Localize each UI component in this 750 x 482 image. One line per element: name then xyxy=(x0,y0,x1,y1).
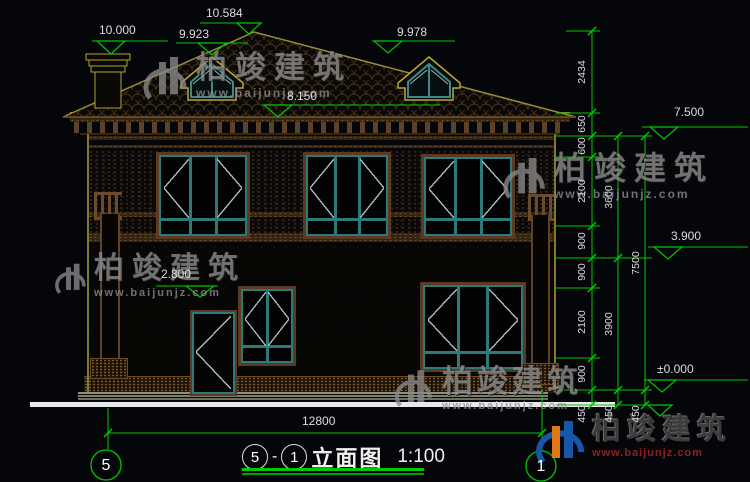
watermark-logo xyxy=(142,52,190,108)
dim-chain-outer: 450 xyxy=(630,386,642,442)
brand-url: www.baijunjz.com xyxy=(592,447,732,459)
elevation-value-eave: 8.150 xyxy=(287,90,317,102)
watermark-logo xyxy=(502,152,548,208)
dim-chain-middle: 450 xyxy=(603,386,615,442)
cad-elevation-canvas: 柏竣建筑 www.baijunjz.com 柏竣建筑 www.baijunjz.… xyxy=(0,0,750,482)
watermark-logo xyxy=(54,254,88,306)
elevation-value-chimney: 10.000 xyxy=(99,24,136,36)
title-dash: - xyxy=(272,448,277,466)
grid-bubble-left-label: 5 xyxy=(99,457,113,475)
elevation-value-ridge: 10.584 xyxy=(206,7,243,19)
title-underline-heavy xyxy=(242,468,424,471)
dim-chain-inner: 450 xyxy=(576,386,588,442)
dim-chain-middle: 3600 xyxy=(603,169,615,225)
watermark-name: 柏竣建筑 xyxy=(196,52,352,83)
title-grid-left: 5 xyxy=(242,444,268,470)
right-dormer xyxy=(398,57,460,100)
elevation-value-dormer-left: 9.923 xyxy=(179,28,209,40)
watermark: 柏竣建筑 www.baijunjz.com xyxy=(392,366,582,414)
dimension-overall-width: 12800 xyxy=(302,415,335,427)
watermark-logo xyxy=(392,366,436,414)
elevation-value-porch: 2.800 xyxy=(161,268,191,280)
watermark-name: 柏竣建筑 xyxy=(442,366,582,397)
elevation-value-zero: ±0.000 xyxy=(657,363,694,375)
dim-chain-inner: 2434 xyxy=(576,44,588,100)
watermark-url: www.baijunjz.com xyxy=(442,400,582,412)
title-underline-light xyxy=(242,473,424,475)
dim-chain-middle: 3900 xyxy=(603,296,615,352)
dim-chain-inner: 2100 xyxy=(576,163,588,219)
dim-chain-inner: 900 xyxy=(576,244,588,300)
watermark: 柏竣建筑 www.baijunjz.com xyxy=(142,52,352,108)
dim-chain-outer: 7500 xyxy=(630,235,642,291)
elevation-value-dormer-right: 9.978 xyxy=(397,26,427,38)
title-scale: 1:100 xyxy=(397,446,445,468)
elevation-value-eave-right: 7.500 xyxy=(674,106,704,118)
watermark: 柏竣建筑 www.baijunjz.com xyxy=(54,254,246,306)
dim-chain-inner: 2100 xyxy=(576,294,588,350)
watermark-url: www.baijunjz.com xyxy=(94,287,246,299)
grid-bubble-right-label: 1 xyxy=(534,458,548,476)
watermark-url: www.baijunjz.com xyxy=(196,86,352,100)
title-grid-right: 1 xyxy=(281,444,307,470)
elevation-value-sill: 3.900 xyxy=(671,230,701,242)
